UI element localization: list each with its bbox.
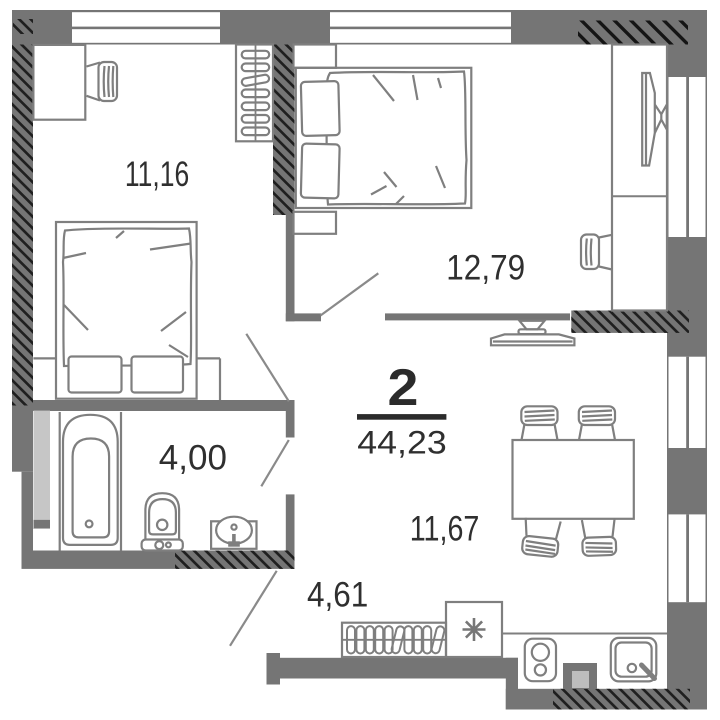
svg-text:12,79: 12,79 (446, 249, 525, 288)
svg-text:44,23: 44,23 (357, 425, 446, 461)
svg-text:4,61: 4,61 (307, 576, 368, 615)
svg-text:11,16: 11,16 (125, 154, 189, 193)
svg-text:11,67: 11,67 (410, 509, 480, 548)
svg-text:2: 2 (388, 359, 419, 417)
svg-text:4,00: 4,00 (159, 439, 227, 478)
